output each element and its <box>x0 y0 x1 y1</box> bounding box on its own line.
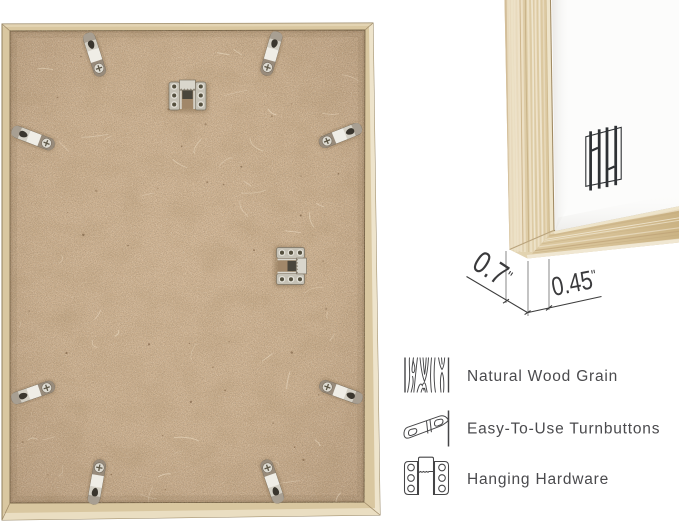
svg-text:Hanging Hardware: Hanging Hardware <box>467 471 609 488</box>
svg-text:Natural Wood Grain: Natural Wood Grain <box>467 368 618 385</box>
svg-text:Easy-To-Use Turnbuttons: Easy-To-Use Turnbuttons <box>467 421 660 438</box>
